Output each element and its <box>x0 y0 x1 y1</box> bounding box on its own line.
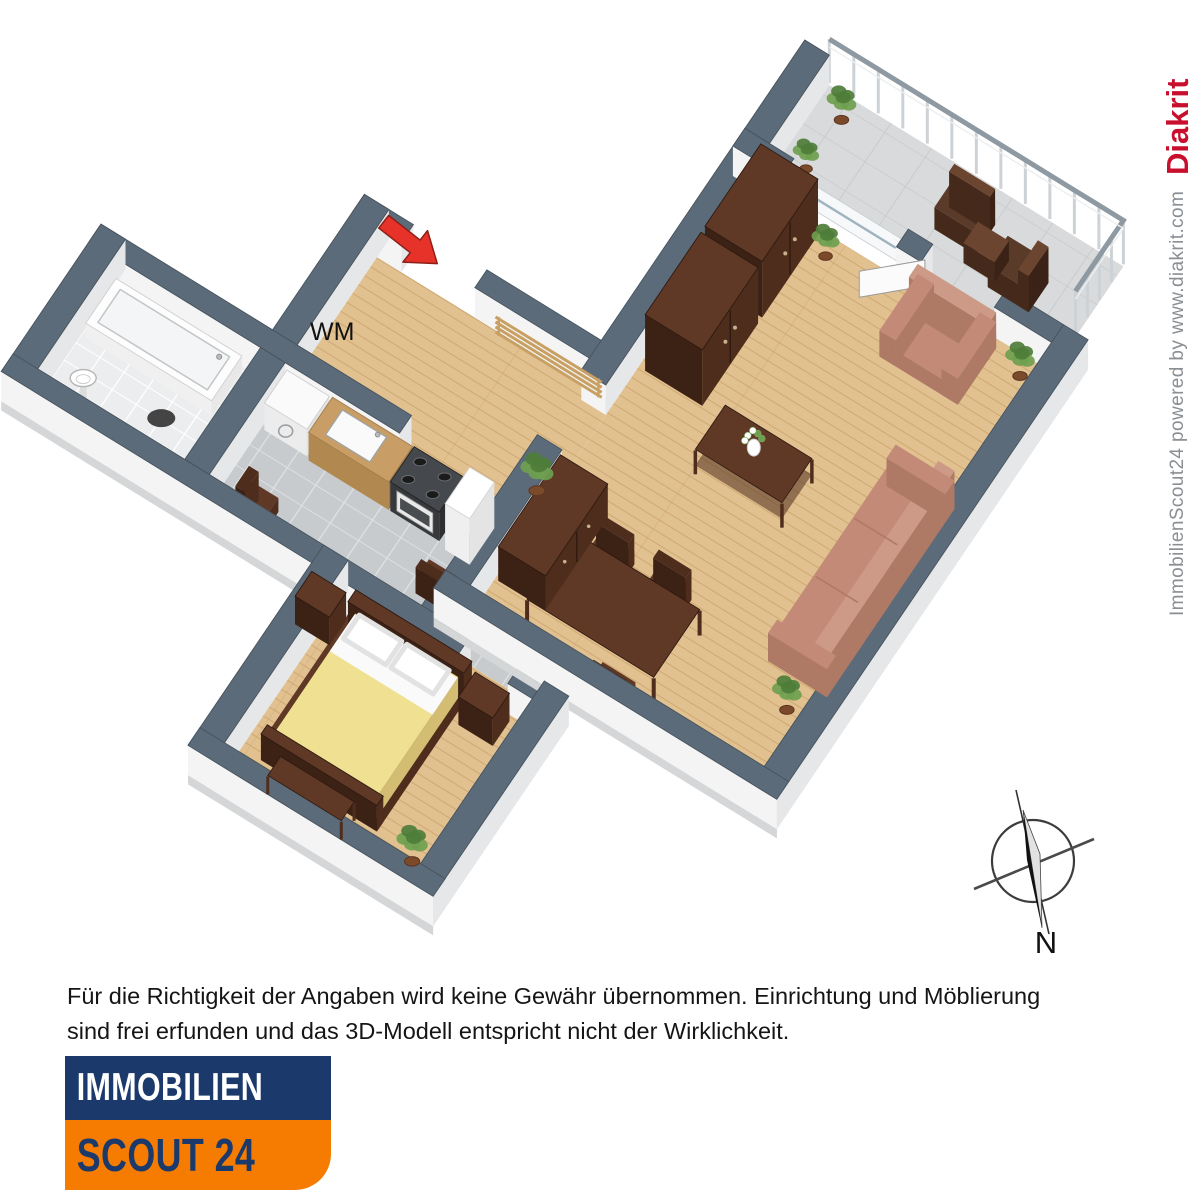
logo-bottom-panel: SCOUT 24 <box>65 1120 331 1190</box>
watermark-credit-text: ImmobilienScout24 powered by www.diakrit… <box>1167 191 1188 616</box>
logo-text-scout24: SCOUT 24 <box>65 1128 255 1182</box>
bath-mat <box>147 409 175 427</box>
disclaimer: Für die Richtigkeit der Angaben wird kei… <box>67 979 1137 1049</box>
watermark: ImmobilienScout24 powered by www.diakrit… <box>1160 56 1196 616</box>
disclaimer-line-2: sind frei erfunden und das 3D-Modell ent… <box>67 1014 1137 1049</box>
logo-text-immobilien: IMMOBILIEN <box>65 1066 263 1110</box>
logo-top-panel: IMMOBILIEN <box>65 1056 331 1120</box>
apartment-floor-plan <box>1 39 1123 935</box>
immobilienscout24-logo: IMMOBILIEN SCOUT 24 <box>65 1056 331 1190</box>
disclaimer-line-1: Für die Richtigkeit der Angaben wird kei… <box>67 979 1137 1014</box>
washing-machine-label: WM <box>310 318 354 346</box>
compass-north-label: N <box>1035 925 1057 960</box>
compass-rose: N <box>974 790 1094 960</box>
watermark-brand-text: Diakrit <box>1160 79 1195 175</box>
